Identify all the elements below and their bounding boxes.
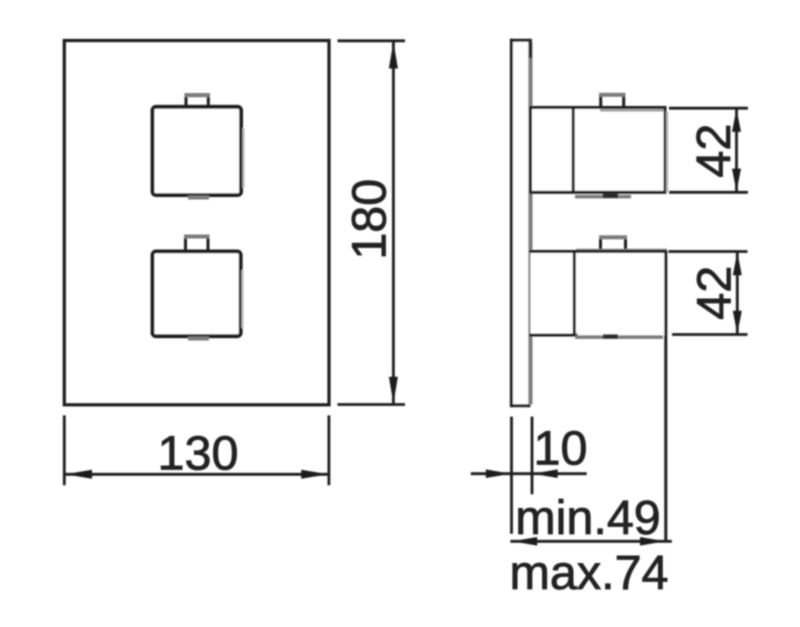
svg-text:42: 42 [688, 266, 742, 320]
svg-text:max.74: max.74 [509, 546, 668, 600]
svg-text:10: 10 [534, 422, 588, 476]
svg-text:42: 42 [687, 124, 741, 178]
svg-text:130: 130 [158, 427, 239, 481]
svg-text:min.49: min.49 [515, 491, 661, 545]
svg-text:180: 180 [343, 179, 397, 260]
